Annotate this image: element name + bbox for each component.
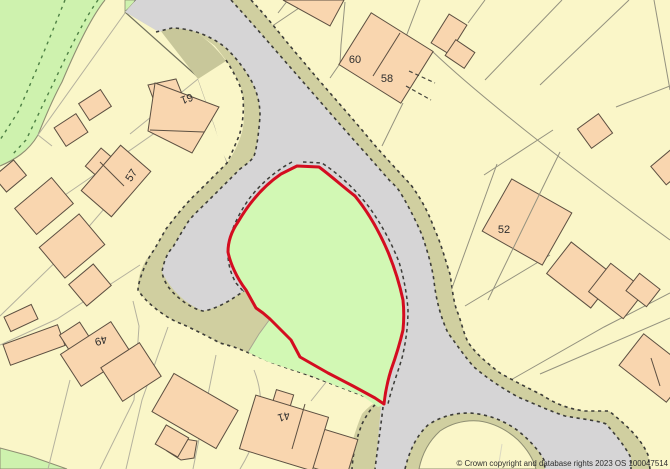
- svg-text:52: 52: [498, 224, 510, 236]
- svg-text:58: 58: [381, 73, 393, 85]
- svg-text:60: 60: [349, 54, 361, 66]
- svg-text:© Crown copyright and database: © Crown copyright and database rights 20…: [456, 459, 668, 468]
